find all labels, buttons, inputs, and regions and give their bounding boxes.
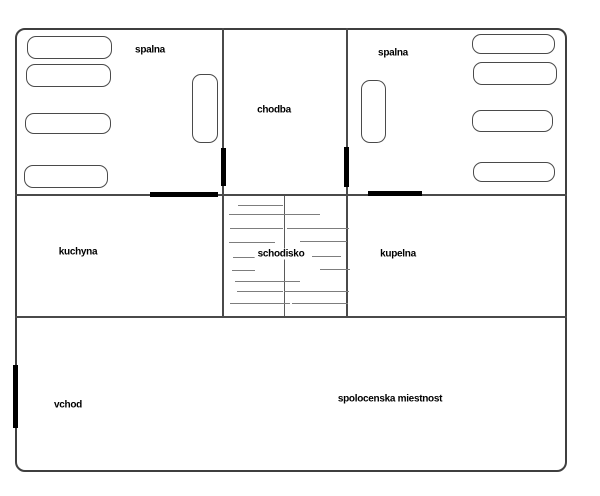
stair-step-4 xyxy=(229,242,275,243)
room-label-spalna-right: spalna xyxy=(378,48,408,59)
stair-step-5 xyxy=(300,241,347,242)
stair-step-13 xyxy=(230,303,290,304)
room-label-kuchyna: kuchyna xyxy=(59,247,97,258)
stair-step-14 xyxy=(292,303,348,304)
door-spalna-left xyxy=(221,148,226,186)
bed-right-1 xyxy=(472,34,555,54)
floor-plan: spalna spalna chodba kuchyna schodisko k… xyxy=(0,0,600,496)
bed-right-3 xyxy=(472,110,553,132)
stair-step-1 xyxy=(229,214,320,215)
wardrobe-left xyxy=(192,74,218,143)
bed-left-1 xyxy=(27,36,112,59)
stair-step-2 xyxy=(230,228,283,229)
stair-step-12 xyxy=(284,291,349,292)
room-label-spolocenska-miestnost: spolocenska miestnost xyxy=(338,394,442,405)
stair-step-7 xyxy=(312,256,341,257)
room-label-schodisko: schodisko xyxy=(255,249,308,260)
bed-left-2 xyxy=(26,64,111,87)
room-label-chodba: chodba xyxy=(257,105,291,116)
door-kupelna xyxy=(368,191,422,196)
bed-left-4 xyxy=(24,165,108,188)
room-label-kupelna: kupelna xyxy=(380,249,416,260)
bed-right-4 xyxy=(473,162,555,182)
stair-step-0 xyxy=(238,205,283,206)
wardrobe-right xyxy=(361,80,386,143)
stair-step-9 xyxy=(320,269,350,270)
stair-step-11 xyxy=(237,291,283,292)
wall-first-floor xyxy=(15,194,567,196)
room-label-spalna-left: spalna xyxy=(135,45,165,56)
wall-ground-floor xyxy=(15,316,567,318)
door-kuchyna xyxy=(150,192,218,197)
bed-right-2 xyxy=(473,62,557,85)
bed-left-3 xyxy=(25,113,111,134)
room-label-vchod: vchod xyxy=(54,400,82,411)
door-spalna-right xyxy=(344,147,349,187)
stair-step-10 xyxy=(235,281,300,282)
stair-step-6 xyxy=(233,257,256,258)
door-vchod xyxy=(13,365,18,428)
stair-step-3 xyxy=(287,228,349,229)
stair-step-8 xyxy=(232,270,255,271)
